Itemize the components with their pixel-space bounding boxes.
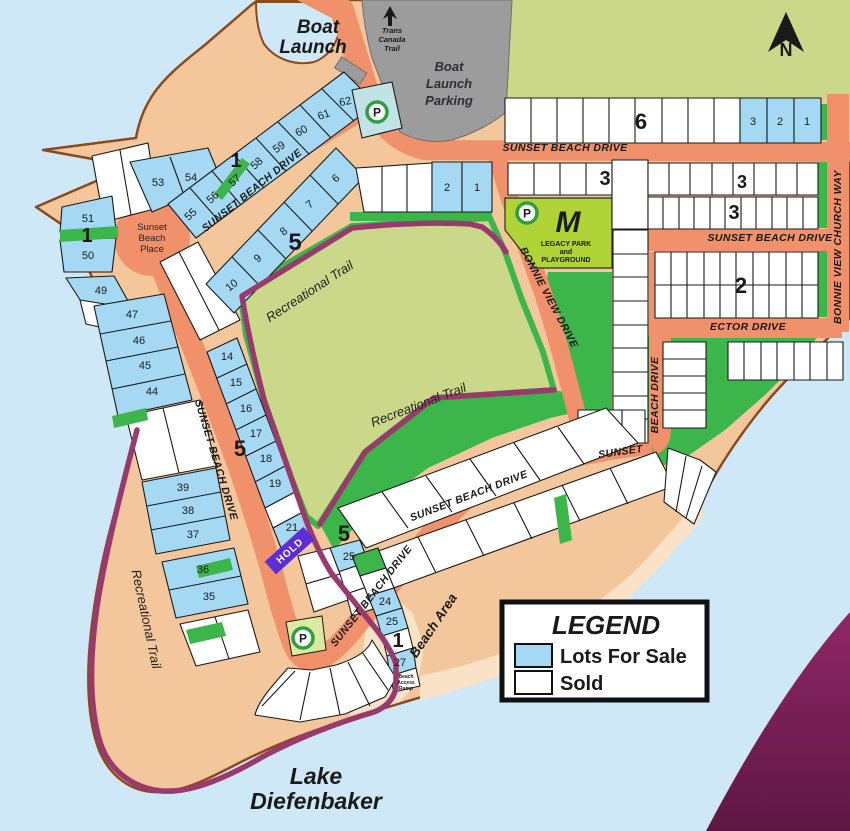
green-strip-churchway-3 [818, 250, 827, 317]
road-label: SUNSET BEACH DRIVE [707, 232, 833, 244]
lot-number: 25 [343, 551, 355, 563]
map-label: and [560, 249, 572, 256]
map-label: Launch [426, 76, 472, 91]
map-label: PLAYGROUND [541, 257, 590, 264]
lot-number: 49 [95, 285, 107, 297]
road-label: SUNSET BEACH DRIVE [502, 142, 628, 154]
lot-number: 17 [250, 428, 262, 440]
map-label: N [780, 40, 793, 60]
map-label: LEGACY PARK [541, 241, 591, 248]
block-number: 5 [234, 436, 246, 461]
lot-number: 14 [221, 351, 233, 363]
lot-number: 2 [444, 182, 450, 194]
lot-number: 35 [203, 591, 215, 603]
legend: LEGEND Lots For Sale Sold [502, 602, 707, 700]
block-number: 3 [599, 168, 610, 190]
lot-number: 45 [139, 360, 151, 372]
lot-number: 25 [386, 616, 398, 628]
lot-number: 2 [777, 116, 783, 128]
map-label: Diefenbaker [250, 788, 383, 814]
map-label: Trail [384, 44, 401, 53]
block-number: 1 [230, 150, 241, 172]
map-label: Trans [382, 26, 402, 35]
lot-number: 24 [379, 596, 391, 608]
parking-letter: P [299, 632, 307, 646]
map-label: M [556, 206, 582, 239]
block-number: 1 [392, 630, 403, 652]
lot-number: 1 [804, 116, 810, 128]
lot-number: 19 [269, 478, 281, 490]
map-canvas: HOLD SUNSET BEACH DRIVESUNSET BEACH DRIV… [0, 0, 850, 831]
lot-number: 1 [474, 182, 480, 194]
lot-number: 44 [146, 386, 158, 398]
road-label: ECTOR DRIVE [710, 321, 787, 333]
lot-number: 50 [82, 250, 94, 262]
legend-swatch-sold [515, 671, 552, 694]
lot-number: 47 [126, 309, 138, 321]
block-number: 5 [288, 229, 301, 256]
map-label: Launch [279, 37, 347, 58]
block-number: 3 [728, 202, 739, 224]
parking-letter: P [523, 207, 531, 221]
parking-letter: P [373, 106, 381, 120]
map-label: Sunset [137, 222, 167, 233]
block-number: 1 [81, 225, 92, 247]
block-number: 5 [338, 521, 350, 546]
legend-swatch-for-sale [515, 644, 552, 667]
green-strip-park-north [350, 212, 492, 221]
lot-number: 21 [286, 522, 298, 534]
green-strip-churchway-2 [818, 162, 827, 228]
lot-number: 27 [394, 657, 406, 669]
legend-label-sold: Sold [560, 673, 603, 695]
subdivision-map: HOLD SUNSET BEACH DRIVESUNSET BEACH DRIV… [0, 0, 850, 831]
map-label: Lake [290, 763, 343, 789]
lot-number: 46 [133, 335, 145, 347]
block-number: 2 [735, 273, 747, 298]
lot-number: 3 [750, 116, 756, 128]
legend-title: LEGEND [552, 610, 661, 640]
lot-number: 62 [338, 95, 352, 109]
lot-number: 36 [197, 564, 209, 576]
lot-number: 16 [240, 403, 252, 415]
map-label: Boat [297, 17, 340, 38]
lot-number: 54 [185, 172, 197, 184]
road-label: BONNIE VIEW CHURCH WAY [832, 169, 844, 323]
map-label: Place [140, 244, 164, 255]
map-label: Boat [435, 59, 465, 74]
lot-number: 37 [187, 529, 199, 541]
lot-number: 53 [152, 177, 164, 189]
lot-number: 18 [260, 453, 272, 465]
map-label: Ramp [399, 686, 413, 692]
block-number: 3 [737, 172, 747, 192]
lot-number: 15 [230, 377, 242, 389]
legend-label-for-sale: Lots For Sale [560, 646, 687, 668]
map-label: Beach [139, 233, 166, 244]
lot-number: 38 [182, 505, 194, 517]
map-label: Parking [425, 93, 473, 108]
block-number: 6 [635, 109, 647, 134]
map-label: Canada [378, 35, 405, 44]
lot-number: 51 [82, 213, 94, 225]
road-label: BEACH DRIVE [649, 356, 661, 433]
lot-number: 39 [177, 482, 189, 494]
